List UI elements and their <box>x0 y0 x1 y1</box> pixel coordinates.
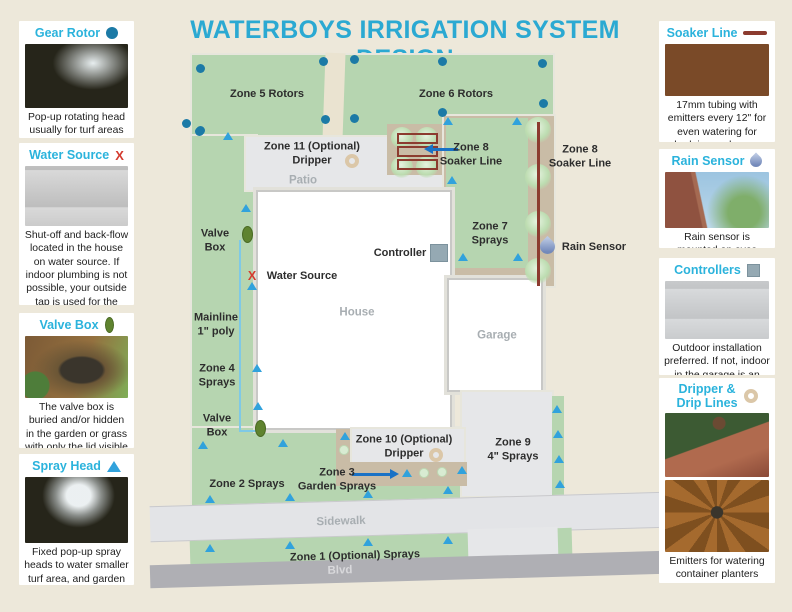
valve-box-icon <box>105 317 114 333</box>
region-garden-path <box>322 53 345 141</box>
map-label-blvd: Blvd <box>327 563 352 579</box>
valve-box-marker <box>242 226 253 243</box>
soaker-bed-photo <box>665 44 769 96</box>
map-label-mainline: Mainline 1" poly <box>194 311 238 340</box>
legend-card-rain-sensor: Rain SensorRain sensor is mounted on eve… <box>659 149 775 248</box>
legend-title: Spray Head <box>32 459 101 473</box>
legend-card-header: Rain Sensor <box>664 153 770 169</box>
spray-head-marker <box>205 495 215 503</box>
emitter-marker <box>437 467 447 477</box>
emitter-marker <box>419 468 429 478</box>
spray-head-marker <box>253 402 263 410</box>
map-label-patio: Patio <box>289 174 317 189</box>
spray-head-marker <box>457 466 467 474</box>
legend-card-dripper-drip-lines: Dripper & Drip LinesEmitters for waterin… <box>659 378 775 583</box>
planter-photo <box>665 413 769 477</box>
map-label-zone-11-optional: Zone 11 (Optional) Dripper <box>264 140 360 169</box>
gear-rotor-marker <box>182 119 191 128</box>
legend-card-header: Spray Head <box>24 458 129 474</box>
water-source-x-icon: X <box>115 149 124 162</box>
map-label-zone-8: Zone 8 Soaker Line <box>440 141 502 170</box>
spray-head-marker <box>553 430 563 438</box>
spray-head-marker <box>443 486 453 494</box>
legend-description: The valve box is buried and/or hidden in… <box>24 401 129 448</box>
map-label-sidewalk: Sidewalk <box>316 514 366 530</box>
legend-card-controllers: ControllersOutdoor installation preferre… <box>659 258 775 375</box>
spray-head-marker <box>285 493 295 501</box>
legend-description: Shut-off and back-flow located in the ho… <box>24 229 129 305</box>
gear-rotor-marker <box>195 127 204 136</box>
map-label-controller: Controller <box>374 246 427 260</box>
spray-head-marker <box>241 204 251 212</box>
legend-title: Controllers <box>674 263 741 277</box>
legend-card-header: Soaker Line <box>664 25 770 41</box>
spray-head-marker <box>340 432 350 440</box>
brick-sky-photo <box>665 172 769 228</box>
legend-sidebar-right: Soaker Line17mm tubing with emitters eve… <box>659 0 775 612</box>
map-label-house: House <box>339 306 374 321</box>
legend-title: Soaker Line <box>667 26 738 40</box>
legend-title: Water Source <box>29 148 109 162</box>
spray-head-marker <box>513 253 523 261</box>
mainline-pipe <box>239 240 241 432</box>
arrow-head <box>390 469 399 479</box>
map-label-rain-sensor: Rain Sensor <box>562 240 626 254</box>
soaker-line-vertical <box>537 122 540 286</box>
spray-head-marker <box>285 541 295 549</box>
legend-description: Outdoor installation preferred. If not, … <box>664 342 770 375</box>
map-label-zone-9: Zone 9 4" Sprays <box>487 436 538 465</box>
map-label-zone-4: Zone 4 Sprays <box>199 362 236 391</box>
map-label-zone-6-rotors: Zone 6 Rotors <box>419 87 493 101</box>
legend-card-header: Controllers <box>664 262 770 278</box>
spray-head-marker <box>443 536 453 544</box>
valve-box-marker <box>255 420 266 437</box>
gear-rotor-marker <box>350 55 359 64</box>
gear-rotor-marker <box>438 57 447 66</box>
spray-head-marker <box>198 441 208 449</box>
spray-head-marker <box>363 538 373 546</box>
legend-card-soaker-line: Soaker Line17mm tubing with emitters eve… <box>659 21 775 142</box>
spray-grass-photo <box>25 477 128 543</box>
legend-card-gear-rotor: Gear RotorPop-up rotating head usually f… <box>19 21 134 138</box>
soaker-line-loop <box>397 133 438 144</box>
legend-title: Dripper & Drip Lines <box>676 382 737 410</box>
spray-head-icon <box>107 461 121 472</box>
legend-description: Rain sensor is mounted on eves trough or… <box>664 231 770 248</box>
water-source-x-mark: X <box>248 268 256 284</box>
legend-description: Fixed pop-up spray heads to water smalle… <box>24 546 129 585</box>
gear-rotor-marker <box>321 115 330 124</box>
dripline-photo <box>665 480 769 552</box>
spray-head-marker <box>223 132 233 140</box>
legend-title: Valve Box <box>39 318 98 332</box>
arrow-head <box>424 144 433 154</box>
legend-card-header: Valve Box <box>24 317 129 333</box>
soaker-line-loop <box>397 159 438 170</box>
sprinkler-lawn-photo <box>25 44 128 108</box>
spray-head-marker <box>402 469 412 477</box>
spray-head-marker <box>252 364 262 372</box>
legend-card-header: Water SourceX <box>24 147 129 163</box>
soaker-line-icon <box>743 31 767 35</box>
gear-rotor-marker <box>350 114 359 123</box>
spray-head-marker <box>278 439 288 447</box>
gear-rotor-marker <box>196 64 205 73</box>
gear-rotor-icon <box>106 27 118 39</box>
gear-rotor-marker <box>538 59 547 68</box>
brick-pipes-photo <box>25 166 128 226</box>
irrigation-design-poster: WATERBOYS IRRIGATION SYSTEM DESIGN Zone … <box>0 0 792 612</box>
spray-head-marker <box>552 405 562 413</box>
emitter-marker <box>339 445 349 455</box>
spray-head-marker <box>205 544 215 552</box>
legend-card-spray-head: Spray HeadFixed pop-up spray heads to wa… <box>19 454 134 585</box>
spray-head-marker <box>512 117 522 125</box>
gear-rotor-marker <box>539 99 548 108</box>
spray-head-marker <box>443 117 453 125</box>
valve-soil-photo <box>25 336 128 398</box>
legend-card-header: Dripper & Drip Lines <box>664 382 770 410</box>
map-label-zone-3: Zone 3 Garden Sprays <box>298 466 376 495</box>
legend-card-water-source: Water SourceXShut-off and back-flow loca… <box>19 143 134 305</box>
legend-card-valve-box: Valve BoxThe valve box is buried and/or … <box>19 313 134 448</box>
spray-head-marker <box>458 253 468 261</box>
gear-rotor-marker <box>438 108 447 117</box>
controller-marker <box>430 244 448 262</box>
spray-head-marker <box>447 176 457 184</box>
map-label-zone-10-optional: Zone 10 (Optional) Dripper <box>356 433 453 462</box>
spray-head-marker <box>554 455 564 463</box>
legend-card-header: Gear Rotor <box>24 25 129 41</box>
controllers-photo <box>665 281 769 339</box>
legend-description: Emitters for watering container planters <box>664 555 770 582</box>
dripper-icon <box>744 389 758 403</box>
legend-title: Gear Rotor <box>35 26 100 40</box>
gear-rotor-marker <box>319 57 328 66</box>
map-label-garage: Garage <box>477 329 517 344</box>
map-label-valve: Valve Box <box>201 227 229 256</box>
legend-description: 17mm tubing with emitters every 12" for … <box>664 99 770 142</box>
spray-head-marker <box>555 480 565 488</box>
map-label-water-source: Water Source <box>267 269 338 283</box>
map-label-zone-5-rotors: Zone 5 Rotors <box>230 87 304 101</box>
map-label-zone-8: Zone 8 Soaker Line <box>549 143 611 172</box>
map-label-valve: Valve Box <box>203 412 231 441</box>
map-label-zone-2-sprays: Zone 2 Sprays <box>209 477 284 491</box>
controller-icon <box>747 264 760 277</box>
map-label-zone-7: Zone 7 Sprays <box>472 220 509 249</box>
legend-sidebar-left: Gear RotorPop-up rotating head usually f… <box>19 0 134 612</box>
legend-title: Rain Sensor <box>672 154 745 168</box>
rain-sensor-icon <box>748 153 765 170</box>
legend-description: Pop-up rotating head usually for turf ar… <box>24 111 129 138</box>
